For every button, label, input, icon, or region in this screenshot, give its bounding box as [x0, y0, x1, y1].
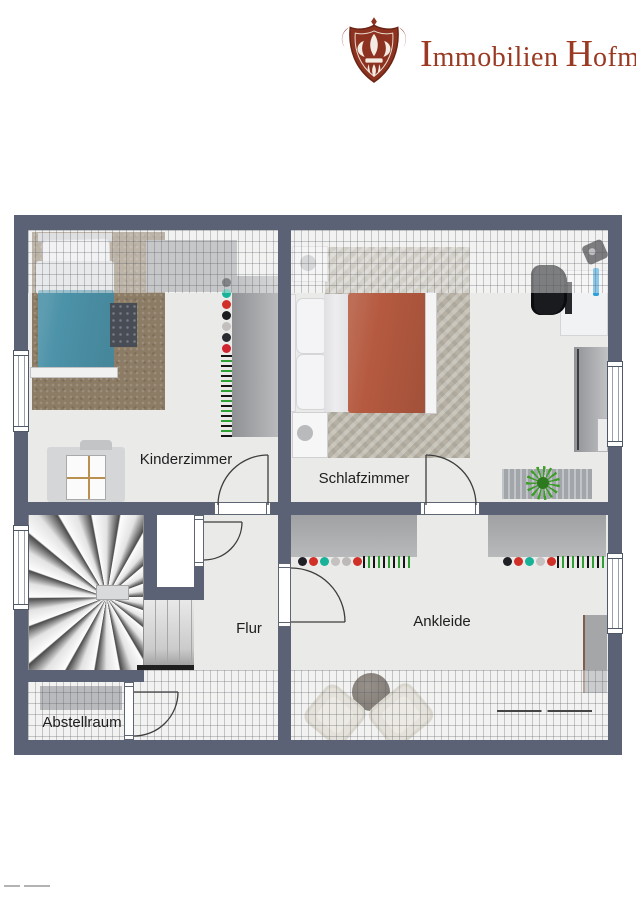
wall-schlafzimmer-ankleide-b	[480, 502, 608, 515]
ankleide-hangers-right	[557, 556, 607, 568]
wall-stair-sliver	[144, 513, 157, 587]
sloped-ceiling-hatch-top	[28, 230, 608, 293]
master-wardrobe	[574, 347, 608, 452]
ankleide-clothes-left	[298, 557, 307, 566]
plant	[526, 466, 560, 500]
fleur-de-lis-crest-icon	[338, 15, 410, 93]
brand-header: ImmobilienHofmann	[338, 12, 636, 96]
brand-word1-rest: mmobilien	[433, 42, 559, 73]
floorplan-page: ImmobilienHofmann	[0, 0, 636, 900]
kids-wardrobe	[232, 276, 281, 437]
kinderzimmer-door-threshold	[214, 502, 271, 515]
room-label-kinderzimmer: Kinderzimmer	[136, 451, 236, 468]
double-bed-blanket	[348, 293, 427, 413]
nightstand-bottom-lamp	[297, 425, 313, 441]
window-stairwell	[13, 527, 29, 608]
dark-rug	[110, 303, 137, 347]
brand-word1-initial: I	[420, 33, 433, 75]
window-ankleide	[607, 555, 623, 632]
wall-right	[608, 215, 622, 755]
floor-plan: Kinderzimmer Schlafzimmer Flur Ankleide …	[14, 215, 622, 755]
watermark-illegible	[4, 885, 50, 887]
wall-bottom	[14, 740, 622, 755]
wall-left	[14, 215, 28, 755]
wall-kinderzimmer-flur-b	[271, 502, 278, 515]
kids-clothes-hangers	[221, 355, 232, 437]
shelf-line-h	[67, 477, 105, 479]
stairwell-door-threshold	[194, 515, 204, 567]
ankleide-door-threshold	[278, 563, 291, 627]
schlafzimmer-door-threshold	[420, 502, 480, 515]
room-label-abstellraum: Abstellraum	[32, 714, 132, 731]
kids-desk-chair	[80, 440, 112, 450]
wall-divider-bedrooms	[278, 230, 291, 515]
ankleide-clothes-right	[503, 557, 512, 566]
brand-name: ImmobilienHofmann	[420, 35, 636, 73]
double-bed-footboard	[425, 292, 437, 414]
shelf-line-v	[88, 456, 90, 499]
ankleide-wardrobe-left	[291, 515, 417, 557]
single-bed-footboard	[30, 367, 118, 378]
wall-top	[14, 215, 622, 230]
wall-below-stair-door	[194, 567, 204, 600]
wall-kinderzimmer-flur-a	[28, 502, 214, 515]
stair-void	[157, 513, 194, 587]
wall-flur-ankleide-a	[278, 515, 291, 563]
stair-landing	[96, 585, 129, 600]
wall-flur-ankleide-b	[278, 627, 291, 740]
kids-desk-shelf	[66, 455, 106, 500]
room-label-schlafzimmer: Schlafzimmer	[314, 470, 414, 487]
single-bed-blanket	[38, 290, 114, 372]
straight-steps	[144, 600, 194, 670]
wall-under-stairs	[28, 670, 144, 682]
clothes-line	[497, 710, 592, 712]
brand-word2-initial: H	[565, 33, 592, 75]
room-label-ankleide: Ankleide	[402, 613, 482, 630]
wardrobe-door-line	[577, 349, 579, 450]
abstellraum-door-threshold	[124, 682, 134, 740]
window-kinderzimmer	[13, 352, 29, 430]
room-label-flur: Flur	[224, 620, 274, 637]
brand-word2-rest: ofmann	[593, 42, 636, 73]
ankleide-wardrobe-right	[488, 515, 606, 557]
ankleide-hangers-left	[363, 556, 413, 568]
wall-schlafzimmer-ankleide-a	[291, 502, 420, 515]
window-schlafzimmer	[607, 363, 623, 445]
